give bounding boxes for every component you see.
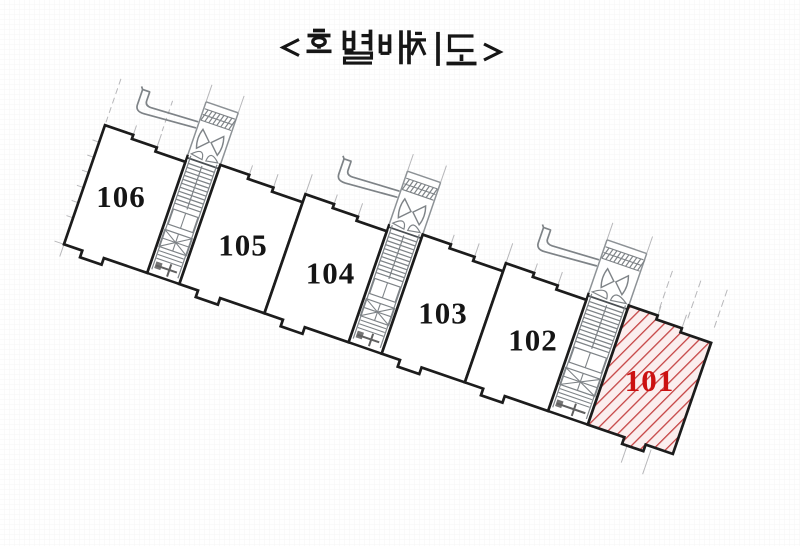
svg-text:101: 101 [625,363,675,398]
svg-text:105: 105 [218,228,268,263]
svg-text:103: 103 [418,296,468,331]
svg-text:106: 106 [96,179,146,214]
svg-text:102: 102 [508,323,558,358]
svg-text:104: 104 [306,256,356,291]
